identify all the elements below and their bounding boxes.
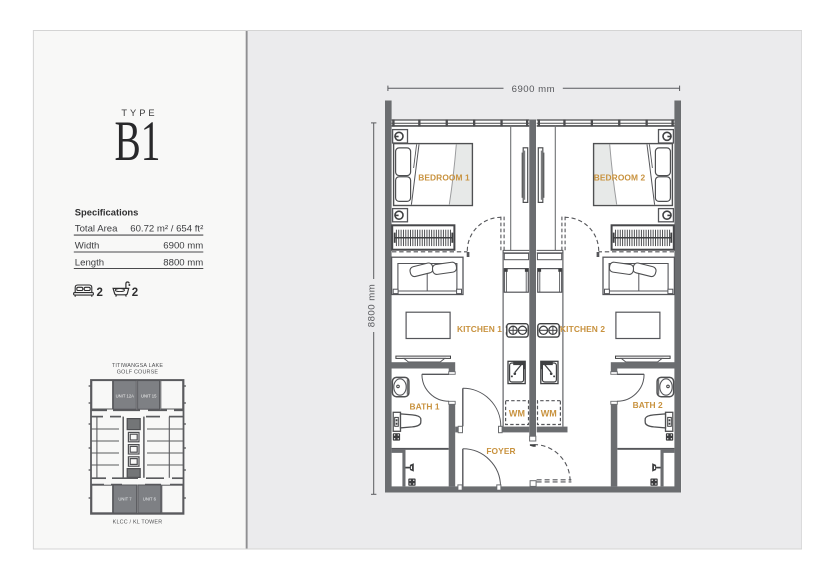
svg-text:Width: Width <box>75 240 100 251</box>
svg-text:UNIT 6: UNIT 6 <box>143 497 157 502</box>
svg-text:GOLF COURSE: GOLF COURSE <box>117 370 159 376</box>
svg-text:B1: B1 <box>115 109 161 173</box>
svg-text:6900 mm: 6900 mm <box>512 84 556 95</box>
svg-text:2: 2 <box>97 287 103 299</box>
svg-text:WM: WM <box>509 408 525 418</box>
svg-text:KLCC / KL TOWER: KLCC / KL TOWER <box>113 519 163 525</box>
svg-text:FOYER: FOYER <box>486 446 515 456</box>
svg-text:BATH 2: BATH 2 <box>633 400 663 410</box>
svg-text:BATH 1: BATH 1 <box>409 402 439 412</box>
svg-text:Length: Length <box>75 257 104 268</box>
svg-text:UNIT 15: UNIT 15 <box>141 393 157 398</box>
svg-text:60.72 m² / 654 ft²: 60.72 m² / 654 ft² <box>130 223 204 234</box>
svg-text:6900 mm: 6900 mm <box>163 240 203 251</box>
svg-text:UNIT 12A: UNIT 12A <box>116 393 135 398</box>
svg-text:Specifications: Specifications <box>75 207 139 218</box>
svg-text:TITIWANGSA LAKE: TITIWANGSA LAKE <box>112 363 164 369</box>
svg-text:2: 2 <box>132 287 138 299</box>
svg-text:BEDROOM 1: BEDROOM 1 <box>418 172 470 182</box>
svg-text:KITCHEN 2: KITCHEN 2 <box>560 324 605 334</box>
svg-text:WM: WM <box>541 408 557 418</box>
svg-text:BEDROOM 2: BEDROOM 2 <box>594 172 646 182</box>
svg-text:8800 mm: 8800 mm <box>163 257 203 268</box>
svg-text:Total Area: Total Area <box>75 223 118 234</box>
svg-text:UNIT 7: UNIT 7 <box>118 497 132 502</box>
svg-text:8800 mm: 8800 mm <box>367 284 378 328</box>
svg-text:KITCHEN 1: KITCHEN 1 <box>457 324 502 334</box>
